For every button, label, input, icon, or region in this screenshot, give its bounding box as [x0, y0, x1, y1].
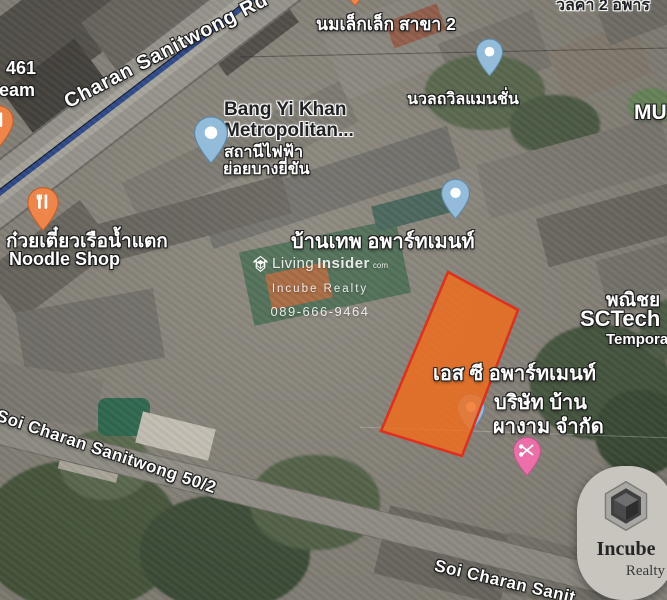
watermark-brand-tld: com	[373, 261, 388, 270]
mansion-marker[interactable]	[475, 36, 504, 84]
poi-label-sc-apartment: เอส ซี อพาร์ทเมนท์	[433, 357, 596, 389]
fork-knife-icon	[0, 112, 2, 127]
poi-label-bang-yi-khan-2: Metropolitan...	[224, 120, 354, 142]
poi-label-top-right-fragment: วลคา 2 อพาร	[556, 0, 650, 18]
poi-label-milk-shop: นมเล็กเล็ก สาขา 2	[316, 10, 456, 38]
cube-hexagon-icon	[598, 478, 654, 534]
poi-label-bang-yi-khan-1: Bang Yi Khan	[224, 99, 346, 121]
poi-label-fragment-461: 461	[6, 58, 36, 79]
restaurant-marker[interactable]	[26, 186, 60, 237]
agency-logo-name: Incube	[597, 538, 656, 561]
marker-top-edge[interactable]	[341, 0, 369, 12]
watermark-brand-prefix: Living	[272, 255, 314, 272]
white-dot-icon	[450, 188, 460, 198]
substation-marker[interactable]	[192, 115, 230, 170]
poi-label-fragment-ream: ream	[0, 80, 35, 101]
watermark-company: Incube Realty	[244, 283, 396, 295]
beauty-salon-marker[interactable]	[512, 435, 542, 483]
poi-label-temporary-fragment: Tempora	[606, 331, 667, 348]
watermark-cube-icon	[252, 255, 269, 272]
poi-label-sc-company-2: ผางาม จำกัด	[493, 410, 604, 442]
restaurant-marker-edge[interactable]	[0, 104, 15, 155]
poi-label-sctech: SCTech	[580, 306, 660, 332]
poi-label-mansion: นวลถวิลแมนชั่น	[407, 87, 519, 112]
poi-label-noodle-en: Noodle Shop	[9, 249, 120, 270]
poi-label-substation-2: ย่อยบางยี่ขัน	[223, 157, 310, 182]
white-dot-icon	[485, 47, 495, 57]
poi-label-baan-thep: บ้านเทพ อพาร์ทเมนท์	[291, 225, 475, 257]
baan-thep-marker[interactable]	[440, 177, 471, 226]
white-dot-icon	[205, 126, 218, 139]
poi-label-mu-fragment: MU	[634, 101, 667, 125]
agency-logo-badge: Incube Realty	[577, 466, 667, 600]
watermark-brand-suffix: Insider	[317, 255, 370, 272]
watermark: LivingInsidercom Incube Realty 089-666-9…	[244, 255, 396, 319]
watermark-phone: 089-666-9464	[244, 304, 396, 319]
agency-logo-subname: Realty	[626, 563, 665, 580]
satellite-map-canvas[interactable]: Charan Sanitwong Rd Soi Charan Sanitwong…	[0, 0, 667, 600]
